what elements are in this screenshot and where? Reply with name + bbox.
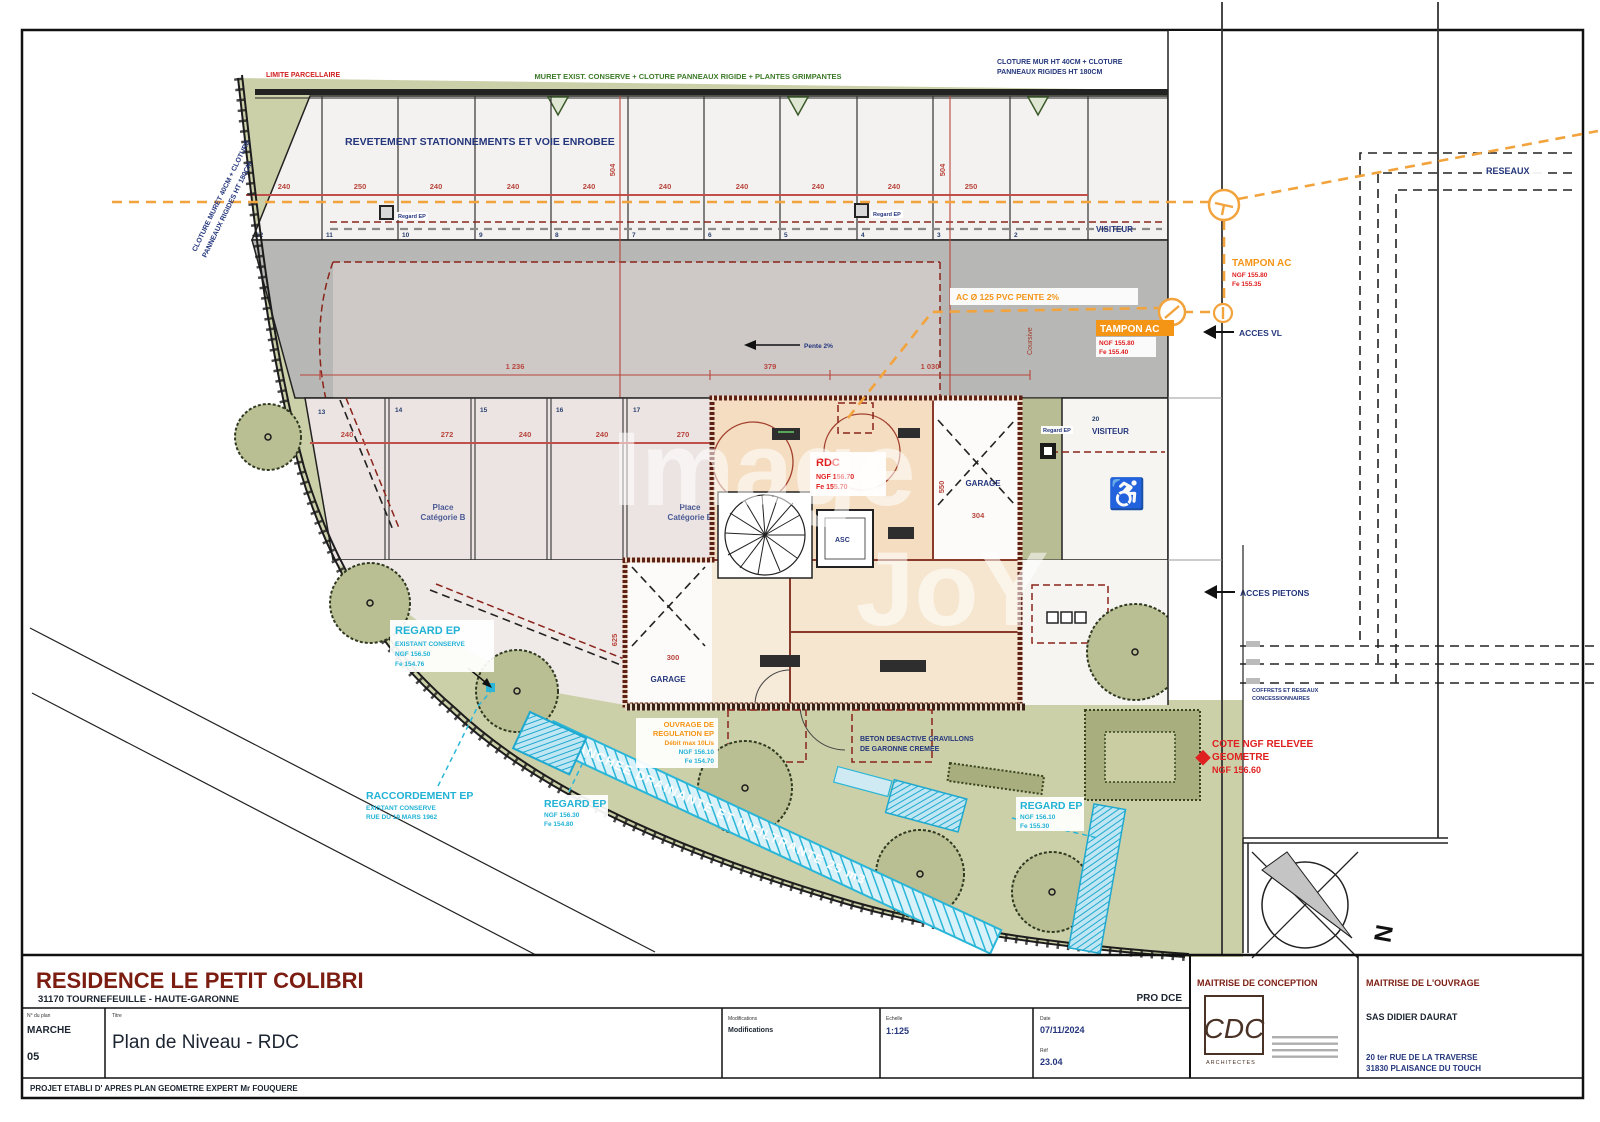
ouvrage-line: OUVRAGE DE <box>664 720 714 729</box>
limite-parcellaire-label: LIMITE PARCELLAIRE <box>266 72 340 79</box>
architectural-site-plan-sheet: { "labels": { "limite": "LIMITE PARCELLA… <box>0 0 1600 1122</box>
acces-pietons-label: ACCES PIETONS <box>1240 588 1310 598</box>
dim-vertical: 504 <box>608 163 617 176</box>
plan-no-label: N° du plan <box>27 1013 51 1019</box>
title-label: Titre <box>112 1013 122 1019</box>
cloture-label: PANNEAUX RIGIDES HT 180CM <box>997 69 1102 76</box>
place-category-label: Catégorie B <box>421 513 466 522</box>
dim: 240 <box>888 182 901 191</box>
stall-number: 16 <box>556 407 564 414</box>
date-value: 07/11/2024 <box>1040 1025 1085 1035</box>
dim: 1 236 <box>506 362 525 371</box>
tampon-label: TAMPON AC <box>1100 324 1159 335</box>
regard-ep-title: REGARD EP <box>544 798 606 810</box>
client-address-1: 20 ter RUE DE LA TRAVERSE <box>1366 1053 1478 1062</box>
plan-title: Plan de Niveau - RDC <box>112 1032 299 1053</box>
acces-vl-label: ACCES VL <box>1239 328 1282 338</box>
client-name: SAS DIDIER DAURAT <box>1366 1012 1458 1022</box>
visitor-stall-label: VISITEUR <box>1096 225 1133 234</box>
plan-no: MARCHE <box>27 1025 71 1036</box>
regard-ep-chamber <box>855 204 868 217</box>
muret-label: MURET EXIST. CONSERVE + CLOTURE PANNEAUX… <box>534 72 841 81</box>
footer-note: PROJET ETABLI D' APRES PLAN GEOMETRE EXP… <box>30 1084 298 1093</box>
cloture-label: CLOTURE MUR HT 40CM + CLOTURE <box>997 59 1123 66</box>
phase-label: PRO DCE <box>1136 993 1182 1004</box>
stall-number: 9 <box>479 232 483 239</box>
conception-header: MAITRISE DE CONCEPTION <box>1197 978 1318 988</box>
scale-label: Echelle <box>886 1016 903 1022</box>
garage-label: GARAGE <box>965 479 1001 488</box>
visitor-stall-number: 20 <box>1092 416 1100 423</box>
raccordement-street: RUE DU 19 MARS 1962 <box>366 814 438 821</box>
stall-number: 2 <box>1014 232 1018 239</box>
regard-ep-small-label: Regard EP <box>873 212 901 218</box>
regard-ep-small-label: Regard EP <box>398 214 426 220</box>
scale-value: 1:125 <box>886 1026 909 1036</box>
stall-number: 6 <box>708 232 712 239</box>
regard-ep-ngf: NGF 156.30 <box>544 812 580 819</box>
ref-value: 23.04 <box>1040 1057 1063 1067</box>
dim: 240 <box>278 182 291 191</box>
top-parking-row: 240 250 240 240 240 240 240 240 240 250 … <box>246 92 1168 247</box>
regard-ep-ngf: NGF 156.50 <box>395 651 431 658</box>
dim: 240 <box>430 182 443 191</box>
ouvrage-ngf: NGF 156.10 <box>679 749 715 756</box>
regard-ep-existant: REGARD EP EXISTANT CONSERVE NGF 156.50 F… <box>390 620 494 672</box>
dim: 240 <box>583 182 596 191</box>
place-category-label: Place <box>433 503 454 512</box>
garage-label: GARAGE <box>650 675 686 684</box>
dim: 240 <box>659 182 672 191</box>
dim: 240 <box>507 182 520 191</box>
tampon-label: TAMPON AC <box>1232 258 1291 269</box>
ac-pipe-label: AC Ø 125 PVC PENTE 2% <box>956 292 1059 302</box>
cote-line: COTE NGF RELEVEE <box>1212 739 1313 750</box>
dim: 379 <box>764 362 777 371</box>
cote-ngf-value: NGF 156.60 <box>1212 765 1261 775</box>
elevator-label: ASC <box>835 537 850 544</box>
dim: 240 <box>736 182 749 191</box>
coursive-label: Coursive <box>1027 327 1034 355</box>
watermark-text: JoY <box>856 531 1049 648</box>
tampon-ngf: NGF 155.80 <box>1232 272 1268 279</box>
regard-ep-sub: EXISTANT CONSERVE <box>395 641 465 648</box>
tampon-ac-1: TAMPON AC NGF 155.80 Fe 155.35 <box>1228 254 1308 294</box>
dim: 240 <box>812 182 825 191</box>
beton-line: BETON DESACTIVE GRAVILLONS <box>860 736 974 743</box>
cote-line: GEOMETRE <box>1212 752 1270 763</box>
regard-ep-fe: Fe 154.80 <box>544 821 574 828</box>
dim: 300 <box>667 653 680 662</box>
ouvrage-regulation: OUVRAGE DE REGULATION EP Débit max 10L/s… <box>636 718 718 768</box>
modifications-label: Modifications <box>728 1016 758 1022</box>
raccordement-title: RACCORDEMENT EP <box>366 790 473 802</box>
regard-ep-title: REGARD EP <box>1020 800 1082 812</box>
regard-ep-fe: Fe 155.30 <box>1020 823 1050 830</box>
ref-label: Réf <box>1040 1048 1048 1054</box>
reseaux-label: RESEAUX <box>1486 166 1530 176</box>
slope-label: Pente 2% <box>804 343 833 350</box>
regard-ep-3: REGARD EP NGF 156.10 Fe 155.30 <box>1016 797 1084 831</box>
dim: 240 <box>519 430 532 439</box>
raccordement-sub: EXISTANT CONSERVE <box>366 805 436 812</box>
dim: 250 <box>354 182 367 191</box>
ouvrage-line: REGULATION EP <box>653 729 714 738</box>
project-location: 31170 TOURNEFEUILLE - HAUTE-GARONNE <box>38 994 239 1005</box>
regard-ep-2: REGARD EP NGF 156.30 Fe 154.80 <box>540 795 608 829</box>
dim: 250 <box>965 182 978 191</box>
regard-ep-small-label: Regard EP <box>1043 428 1071 434</box>
plan-no-2: 05 <box>27 1051 39 1063</box>
wheelchair-icon: ♿ <box>1108 476 1145 511</box>
site-plan-drawing: 240 250 240 240 240 240 240 240 240 250 … <box>0 0 1600 1122</box>
stall-number: 10 <box>402 232 410 239</box>
coffrets-label: CONCESSIONNAIRES <box>1252 696 1310 702</box>
ouvrage-header: MAITRISE DE L'OUVRAGE <box>1366 978 1480 988</box>
dim: 1 030 <box>921 362 940 371</box>
stall-number: 14 <box>395 407 403 414</box>
dim: 240 <box>596 430 609 439</box>
beton-line: DE GARONNE CREMEE <box>860 746 940 753</box>
architectes-label: ARCHITECTES <box>1206 1060 1256 1066</box>
regard-ep-ngf: NGF 156.10 <box>1020 814 1056 821</box>
client-address-2: 31830 PLAISANCE DU TOUCH <box>1366 1064 1481 1073</box>
dim-vertical: 625 <box>610 634 619 647</box>
watermark-text: Image <box>612 411 915 528</box>
ouvrage-line: Débit max 10L/s <box>665 740 715 747</box>
stall-number: 11 <box>326 232 333 239</box>
stall-number: 3 <box>937 232 941 239</box>
acces-vl: ACCES VL <box>1203 325 1282 339</box>
ouvrage-fe: Fe 154.70 <box>685 758 715 765</box>
dim-vertical: 550 <box>937 481 946 494</box>
project-title: RESIDENCE LE PETIT COLIBRI <box>36 968 364 993</box>
regard-ep-chamber <box>380 206 393 219</box>
stall-number: 7 <box>632 232 636 239</box>
regard-ep-title: REGARD EP <box>395 625 460 637</box>
surface-label: REVETEMENT STATIONNEMENTS ET VOIE ENROBE… <box>345 136 615 148</box>
dim-vertical: 504 <box>938 163 947 176</box>
dim: 240 <box>341 430 354 439</box>
stall-number: 15 <box>480 407 488 414</box>
tampon-fe: Fe 155.40 <box>1099 349 1129 356</box>
modifications-value: Modifications <box>728 1027 773 1034</box>
stall-number: 13 <box>318 409 326 416</box>
dim: 272 <box>441 430 454 439</box>
stall-number: 5 <box>784 232 788 239</box>
date-label: Date <box>1040 1016 1051 1022</box>
tampon-fe: Fe 155.35 <box>1232 281 1262 288</box>
stall-number: 4 <box>861 232 865 239</box>
tampon-ngf: NGF 155.80 <box>1099 340 1135 347</box>
regard-ep-fe: Fe 154.76 <box>395 661 425 668</box>
dim: 304 <box>972 511 985 520</box>
coffrets-label: COFFRETS ET RESEAUX <box>1252 688 1319 694</box>
visitor-stall-label: VISITEUR <box>1092 427 1129 436</box>
logo-text: CDC <box>1204 1013 1265 1044</box>
stall-number: 8 <box>555 232 559 239</box>
